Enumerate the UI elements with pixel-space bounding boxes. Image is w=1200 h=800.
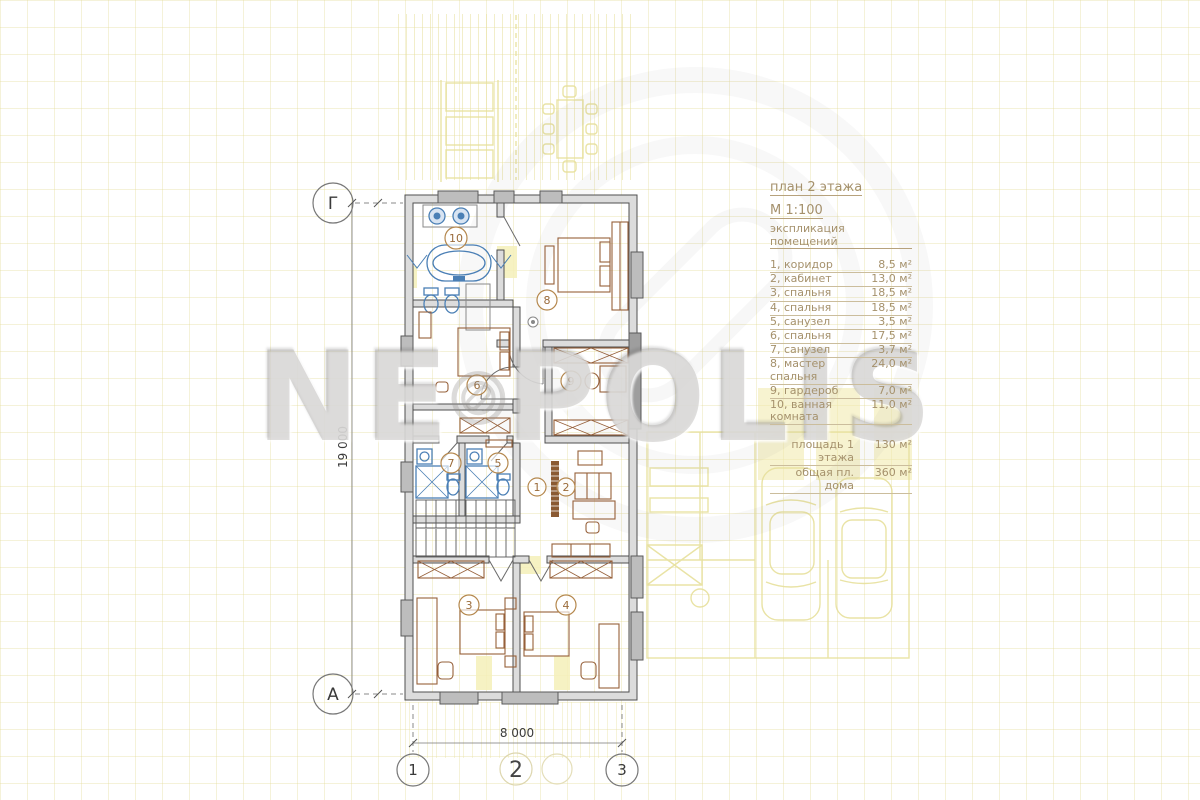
- plan-title: план 2 этажа: [770, 180, 862, 196]
- office-room2: [552, 451, 615, 557]
- legend-room-name: 1, коридор: [770, 259, 833, 271]
- total-label: площадь 1 этажа: [770, 438, 854, 464]
- room-number-8: 8: [544, 294, 551, 307]
- wall-3-4: [513, 563, 520, 692]
- legend-room-name: 6, спальня: [770, 330, 831, 342]
- window: [631, 612, 643, 660]
- total-label: общая пл. дома: [770, 466, 854, 492]
- window-strip: [629, 333, 641, 429]
- washer-room5: [467, 449, 482, 464]
- legend-row: 5, санузел3,5 м²: [770, 316, 912, 330]
- legend-room-area: 7,0 м²: [878, 385, 912, 397]
- legend-room-area: 3,5 м²: [878, 316, 912, 328]
- room-number-3: 3: [466, 599, 473, 612]
- legend-room-area: 17,5 м²: [871, 330, 912, 342]
- wall-bath-bottom: [413, 516, 520, 523]
- title-block: план 2 этажа М 1:100 экспликация помещен…: [770, 176, 912, 494]
- total-value: 360 м²: [866, 466, 912, 492]
- wall-bath-top: [457, 436, 489, 443]
- plan-scale: М 1:100: [770, 203, 823, 219]
- legend-room-name: 3, спальня: [770, 287, 831, 299]
- wall-6-bottom: [413, 404, 513, 410]
- legend-row: 3, спальня18,5 м²: [770, 287, 912, 301]
- hinge-point-dot: [531, 320, 535, 324]
- legend-totals: площадь 1 этажа 130 м² общая пл. дома 36…: [770, 438, 912, 494]
- bedroom-room4: [524, 561, 619, 688]
- legend-row: 9, гардероб7,0 м²: [770, 385, 912, 399]
- axis-label-1: 1: [408, 761, 418, 779]
- dim-height-label: 19 000: [336, 426, 350, 468]
- legend-room-name: 7, санузел: [770, 344, 830, 356]
- wall-8-bottom: [543, 340, 629, 347]
- room-number-1: 1: [534, 481, 541, 494]
- legend-row: 1, коридор8,5 м²: [770, 259, 912, 273]
- axis-label-3: 3: [617, 761, 627, 779]
- bed-room6: [419, 312, 510, 392]
- legend-row: 4, спальня18,5 м²: [770, 302, 912, 316]
- wall-9-bottom: [545, 436, 629, 443]
- total-row: площадь 1 этажа 130 м²: [770, 438, 912, 466]
- legend-room-area: 24,0 м²: [871, 358, 912, 370]
- wall-8-bottom: [497, 340, 509, 347]
- axis-label-a: А: [327, 685, 339, 705]
- legend-room-name: 5, санузел: [770, 316, 830, 328]
- wall-6-corridor: [513, 399, 520, 413]
- legend-room-name: 4, спальня: [770, 302, 831, 314]
- legend-room-name: 2, кабинет: [770, 273, 832, 285]
- window: [401, 600, 413, 636]
- legend-room-name: 10, ванная комната: [770, 399, 871, 423]
- window: [401, 336, 413, 366]
- legend-row: 10, ванная комната11,0 м²: [770, 399, 912, 425]
- room-number-7: 7: [448, 457, 455, 470]
- bed-room8: [545, 222, 628, 310]
- room-number-4: 4: [563, 599, 570, 612]
- legend-room-area: 11,0 м²: [871, 399, 912, 411]
- window: [540, 191, 562, 203]
- legend-room-area: 8,5 м²: [878, 259, 912, 271]
- washer-room7: [417, 449, 432, 464]
- room-number-5: 5: [495, 457, 502, 470]
- dim-width-label: 8 000: [500, 726, 534, 740]
- second-floor-plan: 10 8 6 9 7 5 1 2 3 4 Г А 19 000 8 000 1 …: [0, 0, 1200, 800]
- wall-bath-right: [513, 443, 520, 516]
- wall-bath-top: [413, 436, 439, 443]
- wall-9-left: [545, 347, 552, 437]
- window: [440, 692, 478, 704]
- wall-10-8: [497, 250, 504, 300]
- wall-6-corridor: [513, 307, 520, 367]
- legend-row: 2, кабинет13,0 м²: [770, 273, 912, 287]
- window: [631, 252, 643, 298]
- legend-room-area: 18,5 м²: [871, 287, 912, 299]
- bedroom-room3: [417, 561, 516, 684]
- axis-label-2: 2: [509, 758, 523, 783]
- shower-room7: [416, 466, 448, 498]
- wardrobe-room9: [554, 348, 628, 435]
- curtain-zigzag: [407, 255, 511, 268]
- wall-bath10-bottom: [413, 300, 513, 307]
- wall-10-8: [497, 203, 504, 217]
- door-leaf-room8: [504, 217, 520, 246]
- legend-room-area: 18,5 м²: [871, 302, 912, 314]
- toilet-room5: [497, 474, 510, 495]
- room-number-6: 6: [474, 379, 481, 392]
- axis-label-g: Г: [328, 194, 338, 214]
- legend-row: 8, мастер спальня24,0 м²: [770, 358, 912, 384]
- room-number-9: 9: [568, 375, 575, 388]
- room-legend-table: 1, коридор8,5 м² 2, кабинет13,0 м² 3, сп…: [770, 259, 912, 425]
- room-number-2: 2: [563, 481, 570, 494]
- legend-room-name: 9, гардероб: [770, 385, 838, 397]
- bathtub: [427, 245, 491, 281]
- floor-plan-sheet: { "watermark": { "left": "NE", "right": …: [0, 0, 1200, 800]
- door-room3: [489, 560, 513, 581]
- total-value: 130 м²: [866, 438, 912, 464]
- legend-room-name: 8, мастер спальня: [770, 358, 871, 382]
- window: [494, 191, 514, 203]
- legend-room-area: 3,7 м²: [878, 344, 912, 356]
- total-row: общая пл. дома 360 м²: [770, 466, 912, 494]
- legend-subtitle: экспликация помещений: [770, 222, 912, 249]
- window: [401, 462, 413, 492]
- legend-room-area: 13,0 м²: [871, 273, 912, 285]
- room-number-10: 10: [449, 232, 463, 245]
- legend-row: 7, санузел3,7 м²: [770, 344, 912, 358]
- window: [438, 191, 478, 203]
- window: [502, 692, 558, 704]
- toilet-room7: [447, 474, 460, 495]
- vanity-double-sink: [423, 205, 477, 227]
- legend-row: 6, спальня17,5 м²: [770, 330, 912, 344]
- underlay-axis-circle: [542, 754, 572, 784]
- window: [631, 556, 643, 598]
